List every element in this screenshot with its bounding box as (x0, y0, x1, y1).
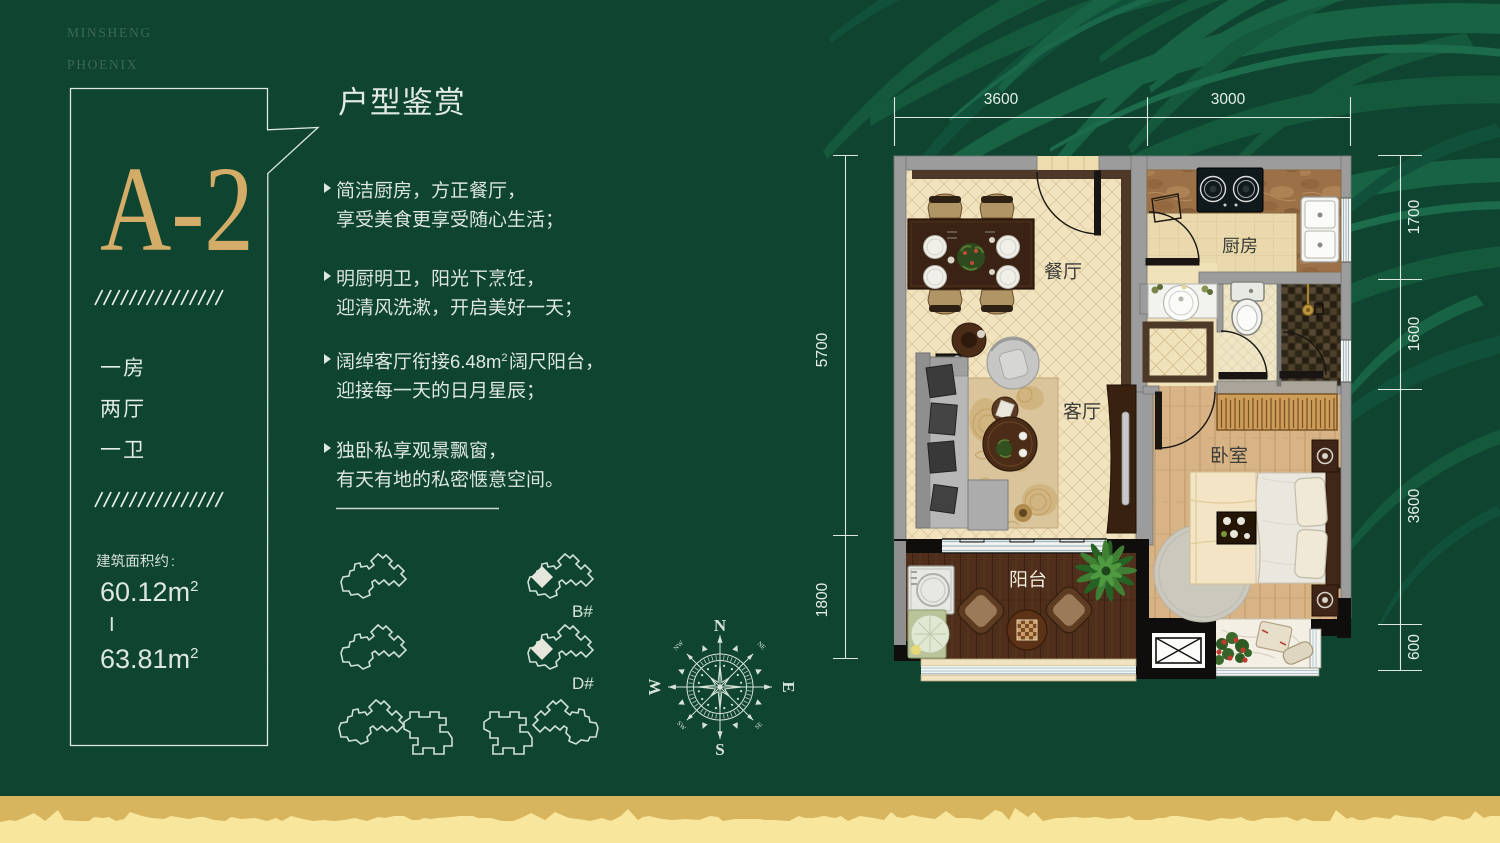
svg-text:S: S (715, 740, 724, 759)
svg-text:E: E (779, 681, 798, 692)
svg-text::: : (171, 553, 175, 569)
svg-text:B#: B# (572, 602, 593, 621)
svg-text:MINSHENG: MINSHENG (67, 25, 152, 40)
svg-text:PHOENIX: PHOENIX (67, 57, 138, 72)
svg-text:W: W (645, 679, 664, 696)
svg-text:3000: 3000 (1211, 91, 1246, 108)
svg-text:A-2: A-2 (100, 142, 254, 277)
svg-text:3600: 3600 (1406, 488, 1423, 523)
svg-text:60.12m2: 60.12m2 (100, 577, 198, 607)
svg-text:63.81m2: 63.81m2 (100, 644, 198, 674)
svg-text:5700: 5700 (814, 332, 831, 367)
svg-text:1700: 1700 (1406, 199, 1423, 234)
svg-text:D#: D# (572, 674, 594, 693)
svg-text:1800: 1800 (814, 582, 831, 617)
svg-text:N: N (714, 616, 727, 635)
svg-text:6.48m2: 6.48m2 (450, 351, 508, 372)
svg-text:I: I (109, 614, 115, 636)
svg-text:3600: 3600 (984, 91, 1019, 108)
svg-text:600: 600 (1406, 634, 1423, 660)
svg-text:1600: 1600 (1406, 316, 1423, 351)
